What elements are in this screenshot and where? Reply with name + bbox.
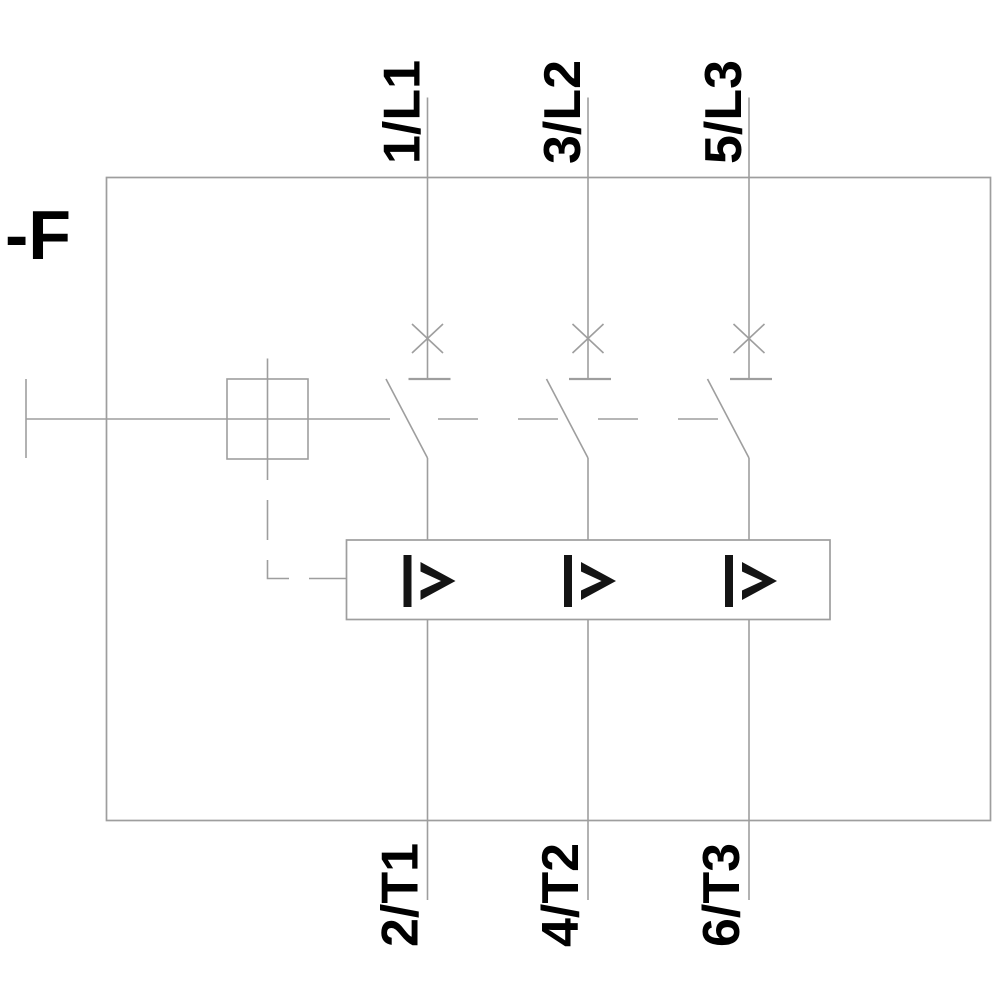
- circuit-breaker-diagram: -F 1/L1 2/T1 3/L2 4/T2 5/L3 6/T3: [0, 0, 1000, 1000]
- pole-3: 5/L3 6/T3: [693, 60, 772, 947]
- overload-release-block: [347, 540, 831, 620]
- pole-2: 3/L2 4/T2: [532, 60, 611, 947]
- overcurrent-release-icon: [725, 555, 777, 607]
- terminal-label-bottom: 4/T2: [532, 843, 590, 947]
- actuator-release-linkage-dashed-line: [268, 480, 347, 579]
- current-bar-glyph: [564, 555, 572, 607]
- contact-blade: [386, 379, 428, 458]
- terminal-label-bottom: 6/T3: [693, 843, 751, 947]
- terminal-label-top: 5/L3: [695, 60, 753, 164]
- overload-release-box-outline: [347, 540, 831, 620]
- terminal-label-top: 3/L2: [534, 60, 592, 164]
- terminal-label-bottom: 2/T1: [372, 843, 430, 947]
- greater-than-glyph: [581, 562, 616, 600]
- overcurrent-release-icon: [404, 555, 456, 607]
- current-bar-glyph: [725, 555, 733, 607]
- greater-than-glyph: [742, 562, 777, 600]
- greater-than-glyph: [421, 562, 456, 600]
- device-label: -F: [5, 196, 71, 274]
- terminal-label-top: 1/L1: [374, 60, 432, 164]
- device-enclosure-outline: [107, 178, 991, 821]
- manual-actuator: [26, 359, 390, 481]
- pole-1: 1/L1 2/T1: [372, 60, 451, 947]
- overcurrent-release-icon: [564, 555, 616, 607]
- current-bar-glyph: [404, 555, 412, 607]
- schematic-page: -F 1/L1 2/T1 3/L2 4/T2 5/L3 6/T3: [0, 0, 1000, 1000]
